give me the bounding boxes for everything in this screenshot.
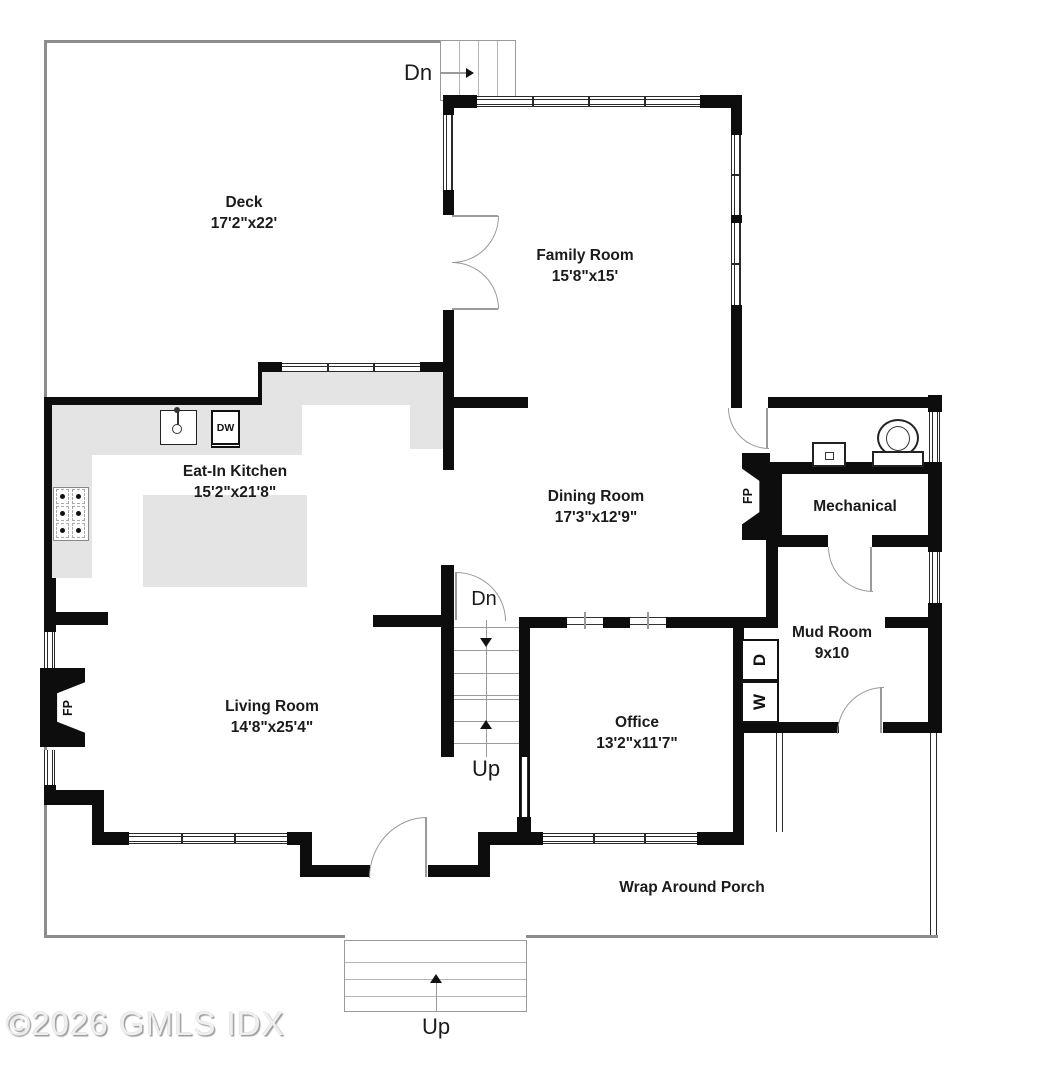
room-name: Eat-In Kitchen	[183, 461, 287, 482]
porch-rail-right	[930, 733, 937, 935]
window-family-room-north	[477, 96, 700, 107]
bathroom-sink-drain	[825, 452, 834, 460]
faucet-stem	[177, 411, 179, 425]
wall-segment	[731, 215, 742, 223]
stair-down-arrow-icon	[480, 638, 492, 647]
stairs-down-label: Dn	[471, 588, 497, 611]
wall-segment	[300, 865, 370, 877]
burner-icon	[56, 523, 69, 538]
kitchen-counter	[262, 372, 443, 405]
wall-segment	[928, 462, 942, 552]
dishwasher-label: DW	[217, 422, 235, 434]
porch-boundary-bottom-left	[44, 935, 345, 938]
burner-icon	[72, 506, 85, 521]
front-door-swing	[369, 817, 427, 878]
toilet-bowl-inner	[886, 426, 910, 451]
room-label-mechanical: Mechanical	[813, 496, 897, 517]
room-name: Office	[596, 712, 678, 733]
deck-boundary-top	[44, 40, 440, 43]
deck-stairs-arrow-icon	[466, 68, 474, 78]
dryer-label: D	[750, 654, 770, 666]
stair-tread	[345, 962, 526, 963]
wall-segment	[44, 625, 56, 632]
wall-segment	[885, 617, 932, 628]
burner-icon	[72, 489, 85, 504]
wall-segment	[731, 108, 742, 135]
wall-segment	[872, 535, 928, 547]
stair-rail	[521, 757, 528, 817]
room-dims: 17'2"x22'	[211, 213, 277, 234]
dishwasher: DW	[211, 410, 240, 448]
burner-icon	[56, 489, 69, 504]
stair-up-arrow-icon	[480, 720, 492, 729]
room-label-office: Office 13'2"x11'7"	[596, 712, 678, 754]
dryer: D	[741, 639, 779, 681]
room-name: Dining Room	[548, 486, 644, 507]
wall-segment	[928, 395, 942, 412]
window-mullion	[588, 96, 590, 107]
room-label-dining-room: Dining Room 17'3"x12'9"	[548, 486, 644, 528]
fireplace-dining-label: FP	[728, 478, 768, 514]
wall-segment	[443, 190, 454, 215]
room-name: Mud Room	[792, 622, 872, 643]
window-mullion	[644, 833, 646, 844]
window-mullion	[731, 263, 741, 265]
room-label-mud-room: Mud Room 9x10	[792, 622, 872, 664]
room-dims: 15'8"x15'	[536, 266, 633, 287]
deck-stairs-direction-line	[441, 72, 466, 74]
wall-segment	[766, 540, 778, 628]
porch-stairs-up-label: Up	[422, 1014, 450, 1040]
room-name: Mechanical	[813, 496, 897, 517]
stair-center-line	[436, 983, 437, 1012]
room-dims: 13'2"x11'7"	[596, 733, 678, 754]
room-dims: 14'8"x25'4"	[225, 717, 319, 738]
wall-segment	[443, 362, 454, 470]
washer: W	[741, 681, 779, 723]
burner-icon	[72, 523, 85, 538]
window-living-south	[129, 833, 287, 844]
porch-stairs	[344, 940, 527, 1012]
wall-segment	[478, 832, 543, 845]
wall-segment	[697, 832, 742, 845]
faucet-icon	[172, 424, 182, 434]
stair-tread	[497, 41, 498, 100]
porch-boundary-bottom-right	[526, 935, 938, 938]
window-mullion	[644, 96, 646, 107]
wall-segment	[731, 305, 742, 408]
room-dims: 9x10	[792, 643, 872, 664]
window-mullion	[593, 833, 595, 844]
wall-segment	[44, 612, 108, 625]
room-label-living-room: Living Room 14'8"x25'4"	[225, 696, 319, 738]
room-name: Wrap Around Porch	[619, 877, 765, 898]
room-name: Deck	[211, 192, 277, 213]
room-dims: 15'2"x21'8"	[183, 482, 287, 503]
wall-segment	[530, 617, 567, 628]
washer-label: W	[750, 694, 770, 710]
window-mullion	[731, 174, 741, 176]
window-mullion	[234, 833, 236, 844]
room-name: Living Room	[225, 696, 319, 717]
wall-segment	[666, 617, 778, 628]
kitchen-counter	[410, 405, 443, 449]
wall-segment	[603, 617, 630, 628]
watermark: ©2026 GMLS IDX	[6, 1005, 285, 1043]
wall-segment	[700, 95, 742, 108]
wall-segment	[443, 108, 454, 115]
window-mullion	[181, 833, 183, 844]
room-name: Family Room	[536, 245, 633, 266]
wall-segment	[92, 832, 129, 845]
bathroom-sink	[812, 442, 846, 467]
deck-stairs-down-label: Dn	[404, 60, 432, 86]
wall-segment	[768, 397, 942, 408]
wall-segment	[733, 722, 839, 733]
stair-up-arrow-icon	[430, 974, 442, 983]
porch-rail-mudroom	[776, 733, 783, 832]
powder-room-door-swing	[728, 408, 769, 449]
window-living-west-2	[44, 750, 55, 787]
stair-tread	[478, 41, 479, 100]
mudroom-door-swing	[837, 687, 884, 734]
french-door-swing-bottom	[452, 262, 499, 309]
wall-segment	[883, 722, 940, 733]
window-family-room-west	[443, 115, 453, 190]
window-family-room-east-2	[731, 223, 741, 305]
wall-segment	[452, 397, 528, 408]
burner-icon	[56, 506, 69, 521]
stairs-up-label: Up	[472, 756, 500, 782]
window-family-room-east-1	[731, 135, 741, 215]
cooktop	[53, 487, 89, 541]
window-mullion	[532, 96, 534, 107]
room-label-porch: Wrap Around Porch	[619, 877, 765, 898]
toilet-tank	[872, 451, 924, 467]
fireplace-living-label: FP	[48, 690, 88, 726]
wall-segment	[770, 535, 828, 547]
wall-segment	[443, 95, 477, 108]
cased-opening-tick	[584, 612, 586, 629]
french-door-swing-top	[452, 216, 499, 263]
window-mudroom-east	[929, 552, 940, 603]
room-dims: 17'3"x12'9"	[548, 507, 644, 528]
window-office-south	[543, 833, 697, 844]
stair-tread	[459, 41, 460, 100]
cased-opening-tick	[647, 612, 649, 629]
wall-segment	[441, 565, 454, 757]
room-label-kitchen: Eat-In Kitchen 15'2"x21'8"	[183, 461, 287, 503]
room-label-deck: Deck 17'2"x22'	[211, 192, 277, 234]
mechanical-door-swing	[828, 547, 873, 592]
deck-stairs	[440, 40, 516, 101]
window-powder-east	[929, 412, 940, 462]
faucet-handle	[174, 407, 180, 413]
wall-segment	[373, 615, 441, 627]
window-living-west-1	[44, 632, 55, 668]
room-label-family-room: Family Room 15'8"x15'	[536, 245, 633, 287]
kitchen-island	[143, 495, 307, 587]
kitchen-sink	[160, 410, 197, 445]
floorplan-canvas: Dn	[0, 0, 1059, 1080]
wall-segment	[443, 310, 454, 362]
